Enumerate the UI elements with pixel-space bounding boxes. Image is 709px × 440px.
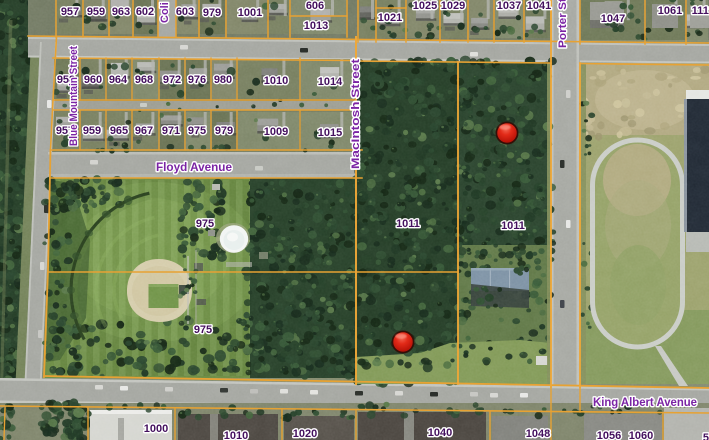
svg-text:1010: 1010 — [264, 75, 288, 87]
svg-text:975: 975 — [188, 125, 206, 137]
svg-text:1029: 1029 — [441, 0, 465, 12]
svg-text:976: 976 — [188, 74, 206, 86]
svg-text:1060: 1060 — [629, 430, 653, 440]
svg-text:964: 964 — [109, 74, 128, 86]
svg-text:1047: 1047 — [601, 13, 625, 25]
svg-text:1013: 1013 — [304, 20, 328, 32]
svg-text:972: 972 — [163, 74, 181, 86]
svg-text:1061: 1061 — [658, 5, 682, 17]
svg-text:1111: 1111 — [692, 5, 709, 17]
svg-text:960: 960 — [84, 74, 102, 86]
svg-text:979: 979 — [203, 7, 221, 19]
svg-text:971: 971 — [162, 125, 180, 137]
svg-text:1041: 1041 — [527, 0, 551, 12]
svg-text:Floyd Avenue: Floyd Avenue — [156, 160, 232, 174]
svg-text:959: 959 — [83, 125, 101, 137]
svg-text:1014: 1014 — [318, 76, 343, 88]
svg-text:603: 603 — [176, 6, 194, 18]
svg-text:1037: 1037 — [497, 0, 521, 12]
svg-text:1040: 1040 — [428, 427, 452, 439]
svg-text:980: 980 — [214, 74, 232, 86]
svg-text:967: 967 — [135, 125, 153, 137]
svg-text:968: 968 — [135, 74, 153, 86]
svg-text:975: 975 — [194, 324, 212, 336]
svg-text:1001: 1001 — [238, 7, 262, 19]
svg-text:1011: 1011 — [501, 220, 525, 232]
svg-text:979: 979 — [215, 125, 233, 137]
svg-text:Coli: Coli — [159, 2, 171, 23]
svg-text:MacIntosh Street: MacIntosh Street — [350, 59, 362, 169]
svg-text:965: 965 — [110, 125, 128, 137]
svg-text:1020: 1020 — [293, 428, 317, 440]
svg-text:1056: 1056 — [597, 430, 621, 440]
svg-text:975: 975 — [196, 218, 214, 230]
svg-text:959: 959 — [87, 6, 105, 18]
svg-text:1015: 1015 — [318, 127, 342, 139]
svg-text:53: 53 — [703, 432, 709, 440]
svg-text:957: 957 — [61, 6, 79, 18]
svg-text:King Albert Avenue: King Albert Avenue — [593, 395, 697, 409]
svg-text:1010: 1010 — [224, 430, 248, 440]
svg-text:1000: 1000 — [144, 423, 168, 435]
svg-text:Blue Mountain Street: Blue Mountain Street — [68, 46, 80, 146]
svg-text:Porter St: Porter St — [557, 0, 569, 48]
svg-text:602: 602 — [136, 6, 154, 18]
svg-text:963: 963 — [112, 6, 130, 18]
svg-text:1011: 1011 — [396, 218, 420, 230]
svg-text:1048: 1048 — [526, 428, 550, 440]
svg-text:1009: 1009 — [264, 126, 288, 138]
svg-text:606: 606 — [306, 0, 324, 12]
svg-text:1025: 1025 — [413, 0, 437, 12]
svg-text:1021: 1021 — [378, 12, 402, 24]
